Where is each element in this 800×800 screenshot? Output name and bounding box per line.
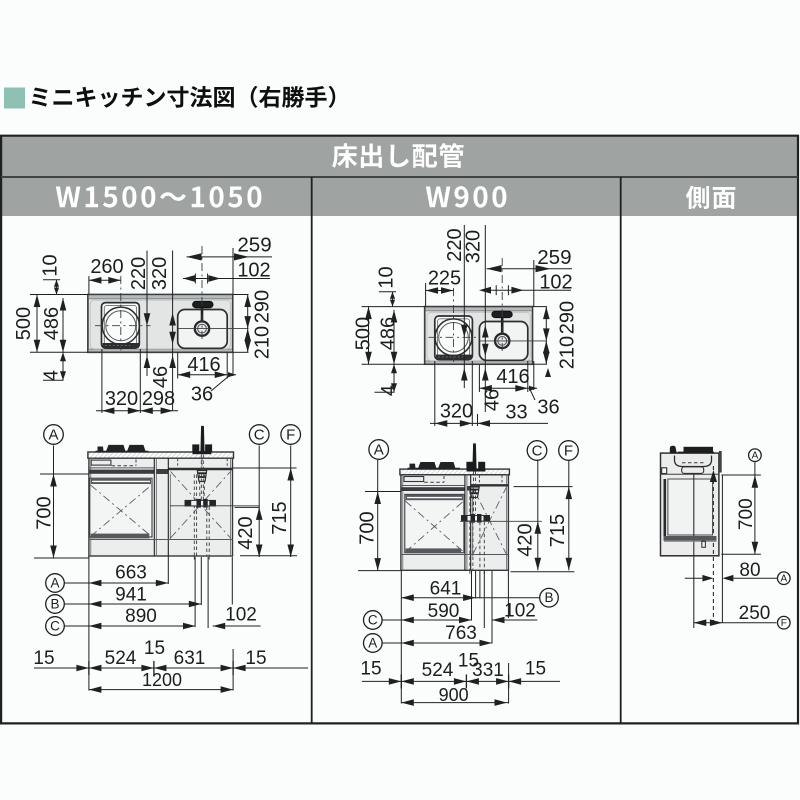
svg-text:486: 486 <box>41 307 63 340</box>
svg-text:A: A <box>780 573 787 584</box>
svg-text:290: 290 <box>251 290 273 323</box>
svg-text:A: A <box>374 442 384 459</box>
svg-text:890: 890 <box>125 606 157 627</box>
svg-text:102: 102 <box>504 601 536 622</box>
svg-text:524: 524 <box>422 660 454 681</box>
svg-text:763: 763 <box>445 623 477 644</box>
svg-text:500: 500 <box>353 317 375 350</box>
svg-text:33: 33 <box>505 402 527 424</box>
svg-text:10: 10 <box>376 266 398 288</box>
svg-text:900: 900 <box>439 685 469 705</box>
svg-text:15: 15 <box>245 648 266 669</box>
svg-text:A: A <box>368 636 377 651</box>
svg-text:320: 320 <box>462 230 484 263</box>
svg-text:320: 320 <box>105 388 138 410</box>
svg-text:663: 663 <box>115 563 147 584</box>
svg-text:36: 36 <box>191 384 213 406</box>
svg-text:46: 46 <box>482 389 504 411</box>
svg-text:524: 524 <box>105 648 137 669</box>
svg-text:A: A <box>752 450 759 461</box>
svg-text:259: 259 <box>537 246 571 269</box>
svg-text:B: B <box>50 597 59 612</box>
svg-text:331: 331 <box>472 660 504 681</box>
svg-text:46: 46 <box>150 366 172 388</box>
svg-text:C: C <box>50 619 60 634</box>
svg-text:590: 590 <box>428 601 460 622</box>
svg-text:4: 4 <box>378 385 400 396</box>
svg-text:F: F <box>781 618 787 629</box>
svg-text:15: 15 <box>360 659 381 680</box>
svg-text:15: 15 <box>144 638 165 659</box>
svg-text:320: 320 <box>440 401 473 423</box>
svg-text:A: A <box>50 576 59 591</box>
svg-text:210: 210 <box>557 336 579 369</box>
svg-text:700: 700 <box>357 511 379 544</box>
svg-text:290: 290 <box>557 301 579 334</box>
svg-text:15: 15 <box>525 659 546 680</box>
svg-text:F: F <box>286 427 295 444</box>
svg-text:259: 259 <box>237 233 271 256</box>
svg-text:416: 416 <box>496 366 529 388</box>
svg-text:C: C <box>368 613 378 628</box>
svg-text:C: C <box>532 443 543 460</box>
svg-text:A: A <box>48 427 58 444</box>
svg-text:225: 225 <box>428 268 461 290</box>
svg-text:4: 4 <box>41 370 63 381</box>
svg-text:700: 700 <box>736 498 757 530</box>
svg-text:210: 210 <box>251 326 273 359</box>
svg-text:641: 641 <box>430 579 462 600</box>
svg-text:36: 36 <box>537 397 559 419</box>
svg-text:700: 700 <box>34 496 56 529</box>
svg-text:298: 298 <box>142 388 175 410</box>
svg-text:715: 715 <box>269 501 291 534</box>
svg-text:C: C <box>254 427 265 444</box>
svg-text:941: 941 <box>115 585 147 606</box>
svg-text:250: 250 <box>739 603 771 624</box>
svg-text:10: 10 <box>40 254 62 276</box>
svg-text:B: B <box>544 590 553 605</box>
svg-text:320: 320 <box>149 257 171 290</box>
svg-text:631: 631 <box>174 648 206 669</box>
svg-text:102: 102 <box>225 605 257 626</box>
svg-text:500: 500 <box>13 307 35 340</box>
svg-text:420: 420 <box>235 516 257 549</box>
svg-text:F: F <box>564 443 573 460</box>
svg-text:15: 15 <box>33 648 54 669</box>
svg-text:420: 420 <box>514 523 536 556</box>
svg-text:1200: 1200 <box>142 670 182 690</box>
svg-text:715: 715 <box>547 514 569 547</box>
svg-text:260: 260 <box>90 256 123 278</box>
